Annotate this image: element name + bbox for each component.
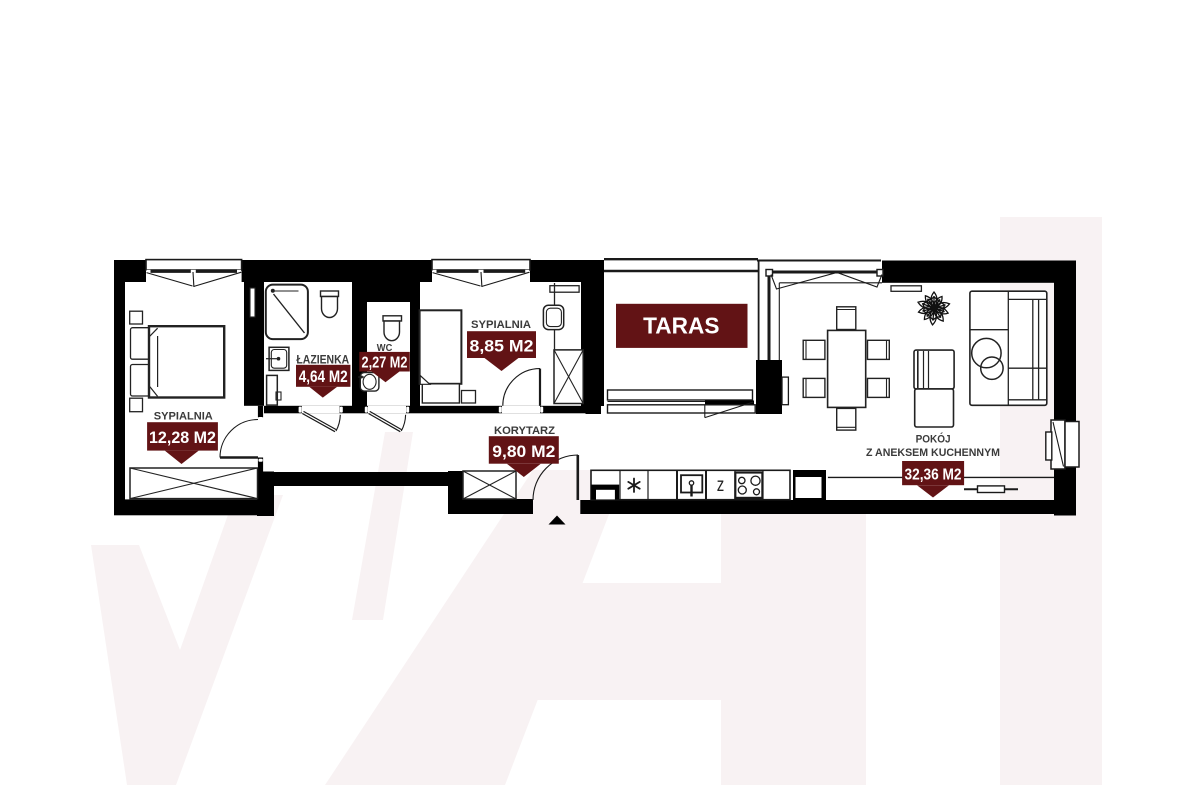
svg-text:ŁAZIENKA: ŁAZIENKA [296, 353, 349, 367]
svg-text:Z ANEKSEM KUCHENNYM: Z ANEKSEM KUCHENNYM [866, 447, 1000, 459]
svg-text:KORYTARZ: KORYTARZ [494, 425, 555, 437]
svg-text:SYPIALNIA: SYPIALNIA [471, 319, 531, 331]
svg-text:POKÓJ: POKÓJ [916, 433, 951, 446]
svg-text:32,36 M2: 32,36 M2 [905, 466, 962, 483]
svg-text:12,28 M2: 12,28 M2 [149, 428, 216, 447]
svg-text:4,64 M2: 4,64 M2 [299, 367, 348, 386]
svg-text:z: z [717, 475, 725, 496]
svg-text:TARAS: TARAS [643, 313, 719, 339]
svg-text:2,27 M2: 2,27 M2 [362, 354, 408, 371]
svg-text:SYPIALNIA: SYPIALNIA [154, 411, 213, 423]
svg-text:9,80 M2: 9,80 M2 [492, 442, 555, 461]
svg-text:8,85 M2: 8,85 M2 [470, 337, 534, 356]
